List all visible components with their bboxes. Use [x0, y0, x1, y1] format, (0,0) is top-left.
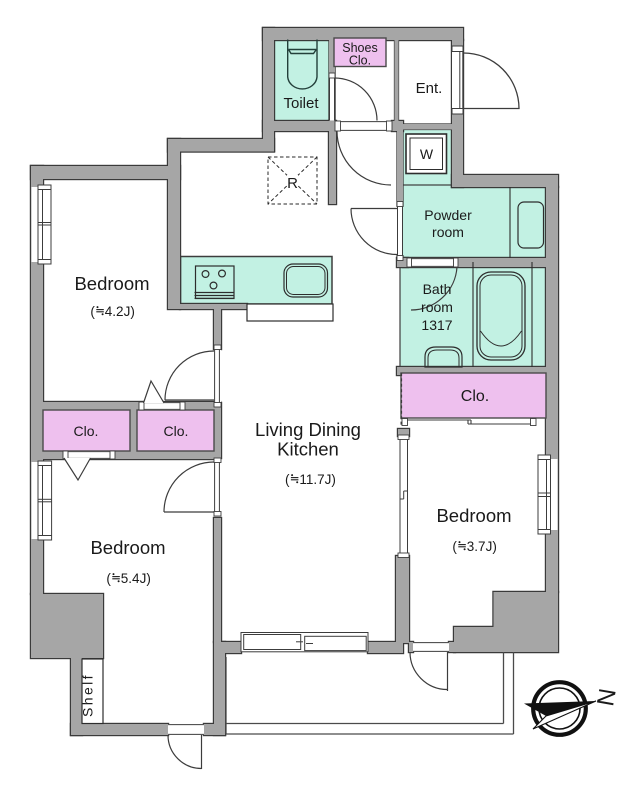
svg-text:Bath: Bath: [423, 281, 452, 297]
svg-text:W: W: [420, 146, 434, 162]
svg-text:Toilet: Toilet: [283, 95, 319, 112]
svg-text:(: (: [285, 472, 290, 487]
svg-text:1317: 1317: [421, 317, 452, 333]
svg-text:Clo.: Clo.: [461, 388, 489, 405]
svg-text:Living Dining: Living Dining: [255, 419, 361, 440]
svg-text:Powder: Powder: [424, 207, 472, 223]
svg-text:R: R: [287, 175, 298, 192]
svg-text:Bedroom: Bedroom: [436, 505, 511, 526]
svg-text:(: (: [90, 304, 95, 319]
svg-text:Shelf: Shelf: [80, 673, 96, 717]
svg-text:Bedroom: Bedroom: [74, 273, 149, 294]
svg-text:(: (: [106, 571, 111, 586]
svg-text:4.2J): 4.2J): [105, 304, 135, 319]
svg-text:Ent.: Ent.: [416, 80, 443, 97]
svg-text:Clo.: Clo.: [349, 54, 371, 68]
svg-text:Clo.: Clo.: [164, 423, 189, 439]
svg-text:(: (: [452, 539, 457, 554]
svg-text:room: room: [421, 299, 453, 315]
svg-text:room: room: [432, 224, 464, 240]
svg-text:Bedroom: Bedroom: [90, 537, 165, 558]
svg-text:3.7J): 3.7J): [467, 539, 497, 554]
svg-text:5.4J): 5.4J): [121, 571, 151, 586]
svg-text:Kitchen: Kitchen: [277, 439, 339, 460]
svg-text:11.7J): 11.7J): [299, 472, 336, 487]
svg-text:Clo.: Clo.: [74, 423, 99, 439]
